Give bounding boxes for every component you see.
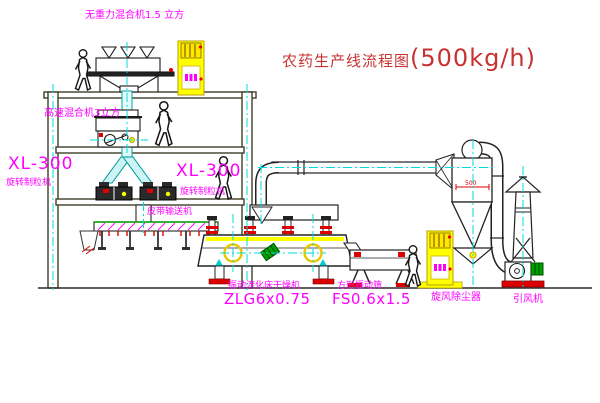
label-granulator-left: 旋转制粒机 [6,179,51,188]
title-capacity: (500kg/h) [410,44,536,72]
label-zero-gravity-mixer: 无重力混合机1.5 立方 [85,11,184,21]
zero-gravity-mixer [86,47,174,92]
cyclone-dimension-text: 500 [465,180,477,187]
drawing-title: 农药生产线流程图 (500kg/h) [282,44,536,72]
fan-motor-icon [531,263,543,275]
control-cabinet-dryer [427,231,453,285]
control-cabinet-roof [178,41,204,95]
worker-figure-roof [76,50,91,90]
granulator-left-unit [96,182,132,200]
label-granulator-center: 旋转制粒机 [180,188,225,197]
label-screen-model: FS0.6x1.5 [332,292,411,307]
fluid-bed-dryer [198,205,352,284]
label-fan: 引风机 [513,295,543,305]
label-high-speed-mixer: 高速混合机3立方 [44,109,120,119]
title-chinese: 农药生产线流程图 [282,50,410,71]
label-dryer-model: ZLG6x0.75 [224,292,311,307]
belt-conveyor [80,222,218,254]
cad-drawing-canvas: 500 [0,0,600,403]
worker-figure-floor2 [156,102,172,146]
dryer-inlet-elbow [261,168,279,207]
label-belt-conveyor: 皮带输送机 [147,208,192,217]
label-cyclone: 旋风除尘器 [431,293,481,303]
label-xl300-center: XL-300 [176,163,241,180]
label-xl300-left: XL-300 [8,156,73,173]
granulator-right-unit [140,182,176,200]
